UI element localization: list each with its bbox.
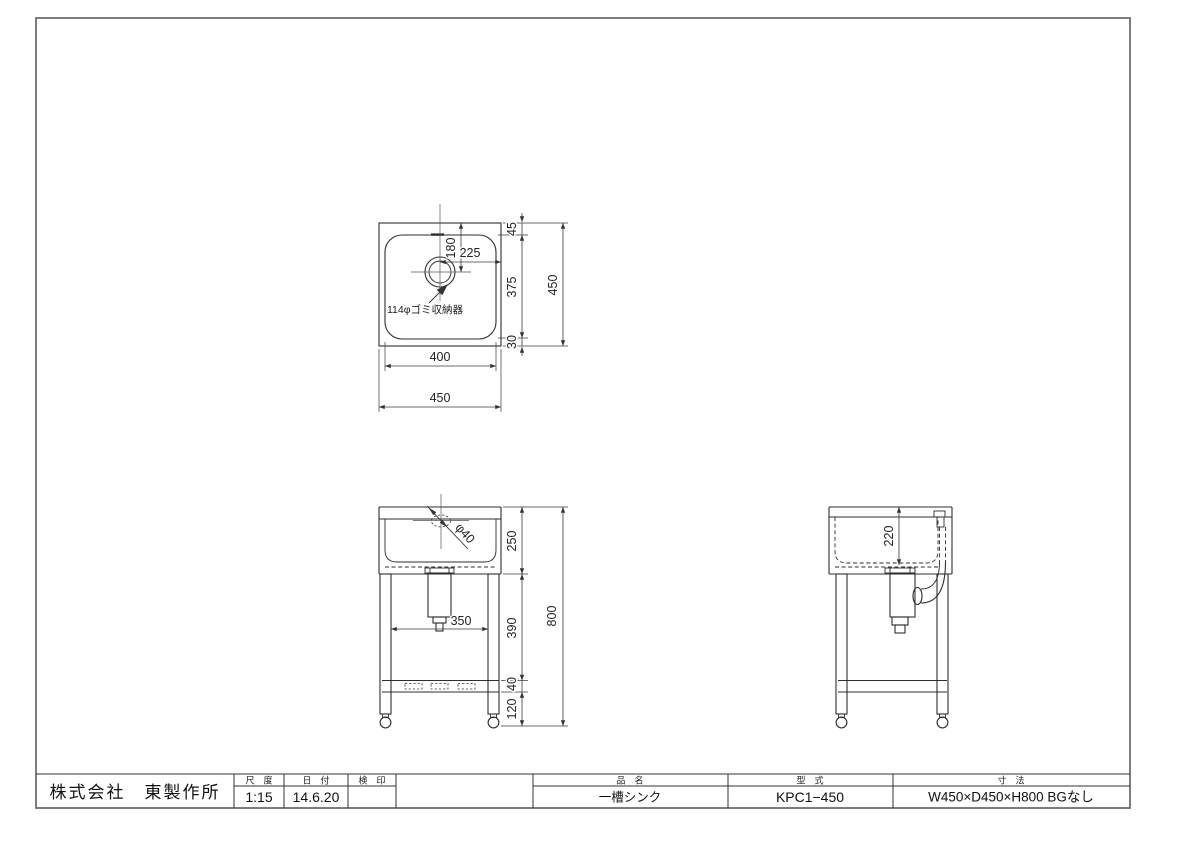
dim-label-375: 375 xyxy=(505,277,519,298)
garbage-container-note: 114φゴミ収納器 xyxy=(387,284,464,316)
front-view-dimensions: 350 250 390 40 120 800 xyxy=(391,507,568,726)
dim-label-390: 390 xyxy=(505,618,519,639)
drain-trap-body xyxy=(890,573,915,617)
title-block: 株式会社 東製作所 尺 度 1:15 日 付 14.6.20 検 印 品 名 一… xyxy=(36,774,1130,808)
left-foot xyxy=(836,717,847,728)
dim-label-450-right: 450 xyxy=(546,275,560,296)
dim-label-400: 400 xyxy=(430,350,451,364)
dim-label-45: 45 xyxy=(505,222,519,236)
dim-label-250: 250 xyxy=(505,531,519,552)
front-view: φ40 350 xyxy=(379,494,568,728)
stamp-label: 検 印 xyxy=(358,775,385,786)
drawing-frame xyxy=(36,18,1130,808)
product-name-label: 品 名 xyxy=(616,775,643,786)
drain-side xyxy=(885,568,915,633)
right-foot xyxy=(488,717,499,728)
dim-label-40: 40 xyxy=(505,677,519,691)
dim-label-30: 30 xyxy=(505,335,519,349)
side-view: 220 xyxy=(829,507,952,728)
rail-slot xyxy=(431,684,448,690)
right-foot xyxy=(937,717,948,728)
dim-label-450-bottom: 450 xyxy=(430,391,451,405)
dim-label-225: 225 xyxy=(460,246,481,260)
left-foot xyxy=(380,717,391,728)
basin-front xyxy=(385,519,496,562)
left-leg xyxy=(380,574,391,714)
drawing-canvas: 180 225 45 375 30 450 xyxy=(0,0,1200,848)
right-leg xyxy=(488,574,499,714)
dim-label-phi40: φ40 xyxy=(452,520,477,546)
sink-front-outline xyxy=(379,507,501,574)
dim-label-120: 120 xyxy=(505,699,519,720)
dim-label-180: 180 xyxy=(444,238,458,259)
scale-value: 1:15 xyxy=(245,789,272,805)
top-view: 180 225 45 375 30 450 xyxy=(379,204,568,412)
size-value: W450×D450×H800 BGなし xyxy=(928,790,1094,805)
side-view-dimensions: 220 xyxy=(882,507,899,565)
size-label: 寸 法 xyxy=(997,775,1024,786)
left-leg xyxy=(836,574,847,714)
company-name: 株式会社 東製作所 xyxy=(50,783,221,802)
dim-label-800: 800 xyxy=(545,606,559,627)
drain-flange xyxy=(425,568,454,573)
drain-trap-body xyxy=(428,573,451,617)
dim-label-220: 220 xyxy=(882,526,896,547)
dim-label-350: 350 xyxy=(451,614,472,628)
product-name-value: 一槽シンク xyxy=(599,791,662,805)
drain-front: φ40 xyxy=(413,494,478,631)
rail-slot xyxy=(458,684,475,690)
overflow-connector xyxy=(913,588,922,605)
legs-side xyxy=(836,574,948,728)
right-leg xyxy=(937,574,948,714)
legs-front xyxy=(380,574,499,728)
overflow-fitting xyxy=(934,511,945,517)
drain-flange xyxy=(885,568,915,573)
scale-label: 尺 度 xyxy=(245,775,272,786)
note-label: 114φゴミ収納器 xyxy=(387,303,464,316)
date-label: 日 付 xyxy=(302,776,329,786)
rail-slot xyxy=(405,684,422,690)
model-label: 型 式 xyxy=(796,775,823,786)
overflow-pipe xyxy=(913,511,946,605)
model-value: KPC1−450 xyxy=(776,789,844,805)
date-value: 14.6.20 xyxy=(293,789,340,805)
